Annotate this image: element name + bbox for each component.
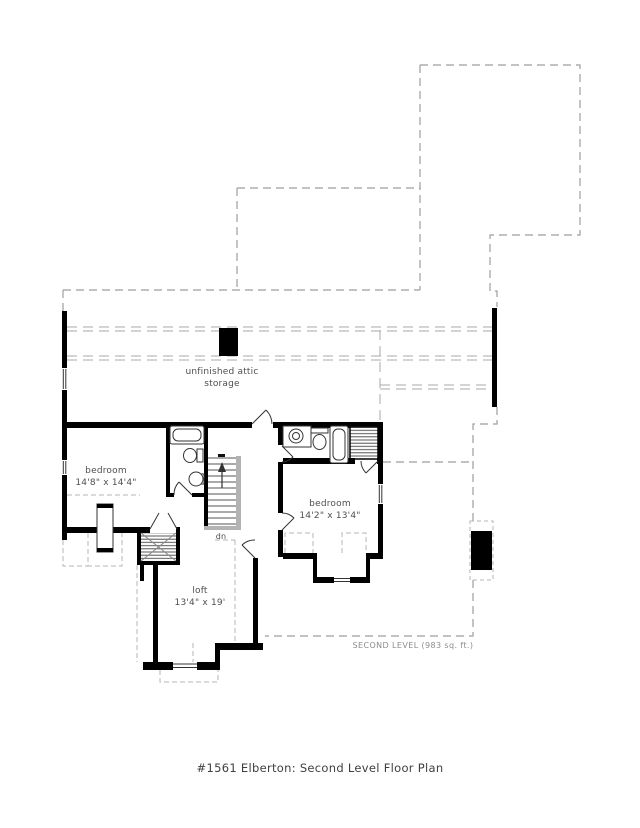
- toilet-bowl-icon: [184, 449, 197, 463]
- walls: [62, 308, 497, 670]
- wall: [113, 527, 150, 533]
- door-bath1: [174, 482, 192, 495]
- wall: [366, 553, 370, 579]
- dormer-bay: [97, 504, 113, 552]
- wall: [62, 311, 67, 368]
- sink-icon: [189, 472, 203, 486]
- loft-dims: 13'4" x 19': [175, 597, 226, 609]
- wall: [137, 561, 180, 565]
- roof-outline-upper-right: [420, 65, 580, 307]
- wall: [204, 422, 208, 530]
- attic-dash-lines: [67, 327, 492, 422]
- wall: [253, 558, 258, 648]
- attic-chimney: [219, 328, 238, 356]
- bedroom-right-name: bedroom: [299, 498, 360, 510]
- wall: [166, 422, 170, 497]
- bedroom2-bay-dash-right: [342, 533, 366, 553]
- loft-closet: [141, 533, 176, 561]
- bathtub-basin-icon: [173, 429, 201, 441]
- bedroom1-dormer: [97, 504, 113, 552]
- wall: [378, 504, 383, 557]
- door-closet-double: [150, 513, 177, 529]
- right-chimney: [471, 531, 492, 570]
- dormer-cap-bottom: [97, 548, 113, 552]
- minor-dashed-details: [63, 495, 493, 682]
- bathroom1-fixtures: [170, 426, 204, 486]
- stair-rail-right: [236, 456, 241, 530]
- window-bedroom2-bay: [334, 579, 350, 582]
- stair-rail-bottom: [204, 526, 241, 530]
- attic-kneewall-dashes: [67, 327, 492, 422]
- wall: [278, 530, 283, 557]
- toilet-tank-icon: [311, 428, 328, 433]
- bathtub-basin-icon: [333, 429, 345, 460]
- bedroom-left-dims: 14'8" x 14'4": [75, 477, 136, 489]
- wall: [350, 577, 370, 583]
- sink-drain-icon: [293, 433, 300, 440]
- door-linen-closet: [361, 461, 378, 473]
- level-note-label: SECOND LEVEL (983 sq. ft.): [353, 640, 474, 652]
- loft-name: loft: [175, 585, 226, 597]
- attic-label-line1: unfinished attic: [185, 366, 258, 378]
- below-loft-dash: [160, 670, 218, 682]
- floor-plan-canvas: [0, 0, 640, 828]
- loft-label: loft 13'4" x 19': [175, 585, 226, 609]
- wall: [278, 428, 283, 445]
- wall: [176, 527, 180, 565]
- wall: [153, 565, 158, 663]
- wall: [62, 527, 97, 533]
- window-left-lower: [63, 461, 66, 474]
- stairs: [204, 454, 241, 530]
- stair-top-marker: [218, 454, 225, 457]
- bathroom2-fixtures: [283, 426, 378, 463]
- wall: [140, 565, 144, 581]
- wall: [166, 493, 174, 497]
- window-left-upper: [63, 369, 66, 389]
- bedroom-right-label: bedroom 14'2" x 13'4": [299, 498, 360, 522]
- toilet-tank-icon: [197, 449, 203, 462]
- floor-plan-page: unfinished attic storage bedroom 14'8" x…: [0, 0, 640, 828]
- window-bedroom2-right: [379, 485, 382, 503]
- plan-caption: #1561 Elberton: Second Level Floor Plan: [197, 762, 444, 774]
- linen-closet-shelves-icon: [350, 426, 378, 459]
- wall: [278, 462, 283, 513]
- dormer-cap-top: [97, 504, 113, 508]
- wall: [492, 308, 497, 407]
- bedroom-left-name: bedroom: [75, 465, 136, 477]
- wall: [283, 553, 317, 559]
- roof-outline-upper-left: [63, 188, 420, 311]
- door-attic: [252, 410, 272, 424]
- wall: [313, 577, 334, 583]
- bedroom-right-dims: 14'2" x 13'4": [299, 510, 360, 522]
- toilet-bowl-icon: [313, 435, 326, 450]
- attic-label-line2: storage: [185, 378, 258, 390]
- window-loft-bottom: [173, 664, 197, 668]
- wall: [313, 553, 317, 579]
- wall: [137, 527, 141, 565]
- door-loft: [242, 540, 255, 558]
- wall: [62, 422, 252, 428]
- door-bedroom2: [282, 513, 294, 530]
- wall: [143, 662, 173, 670]
- attic-label: unfinished attic storage: [185, 366, 258, 390]
- stairs-direction-label: dn: [216, 531, 227, 543]
- bedroom-left-label: bedroom 14'8" x 14'4": [75, 465, 136, 489]
- bedroom2-bay-dash-left: [285, 533, 313, 553]
